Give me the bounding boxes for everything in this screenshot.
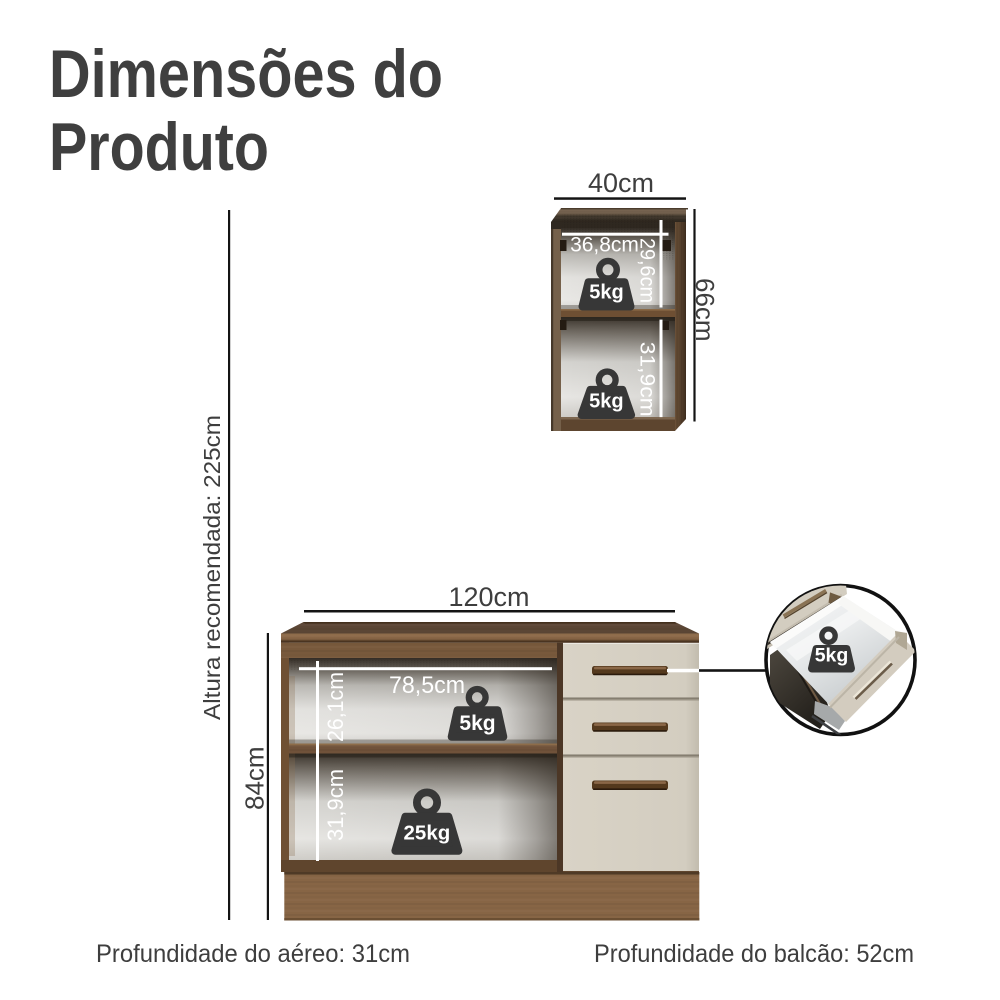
svg-text:84cm: 84cm bbox=[240, 746, 270, 810]
svg-text:5kg: 5kg bbox=[815, 645, 849, 667]
svg-text:26,1cm: 26,1cm bbox=[323, 672, 348, 742]
svg-text:78,5cm: 78,5cm bbox=[389, 672, 465, 699]
svg-text:29,6cm: 29,6cm bbox=[636, 238, 659, 303]
svg-text:66cm: 66cm bbox=[690, 278, 720, 342]
svg-text:Dimensões do: Dimensões do bbox=[49, 36, 443, 112]
svg-text:31,9cm: 31,9cm bbox=[636, 342, 659, 417]
svg-text:Profundidade do aéreo: 31cm: Profundidade do aéreo: 31cm bbox=[96, 940, 410, 968]
svg-text:40cm: 40cm bbox=[588, 168, 654, 198]
svg-text:5kg: 5kg bbox=[589, 282, 623, 304]
svg-text:31,9cm: 31,9cm bbox=[323, 769, 348, 841]
svg-text:Profundidade do balcão: 52cm: Profundidade do balcão: 52cm bbox=[594, 940, 914, 968]
svg-text:5kg: 5kg bbox=[589, 391, 623, 413]
svg-text:120cm: 120cm bbox=[448, 582, 529, 612]
svg-text:5kg: 5kg bbox=[459, 712, 495, 735]
svg-text:Altura recomendada: 225cm: Altura recomendada: 225cm bbox=[199, 415, 225, 720]
svg-text:Produto: Produto bbox=[49, 109, 269, 185]
svg-text:25kg: 25kg bbox=[404, 822, 451, 845]
svg-text:36,8cm: 36,8cm bbox=[570, 234, 639, 257]
